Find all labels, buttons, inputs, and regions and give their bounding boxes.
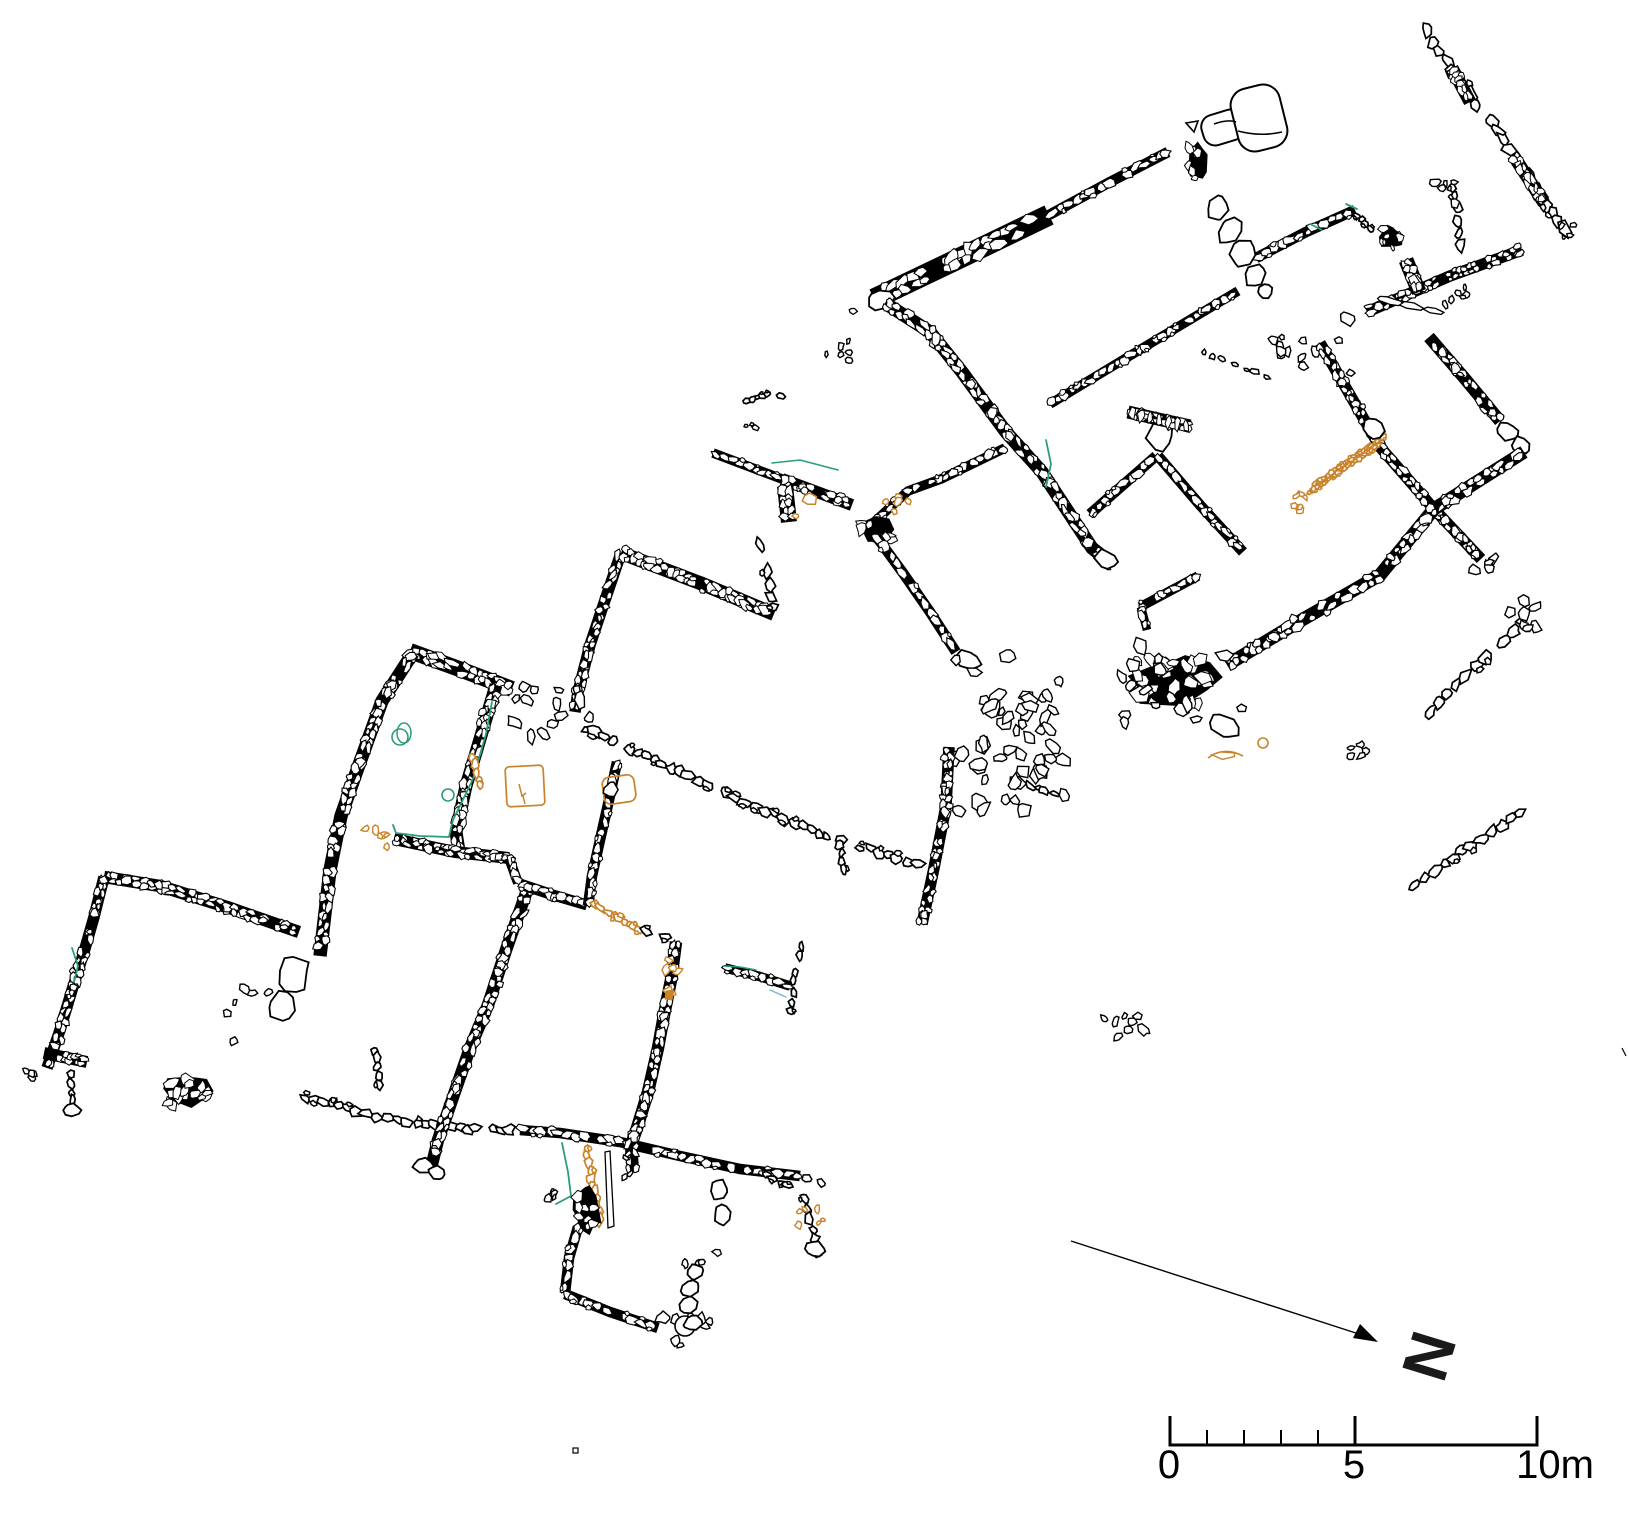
svg-text:5: 5: [1343, 1443, 1365, 1487]
svg-text:0: 0: [1158, 1443, 1180, 1487]
svg-text:10m: 10m: [1516, 1443, 1594, 1487]
